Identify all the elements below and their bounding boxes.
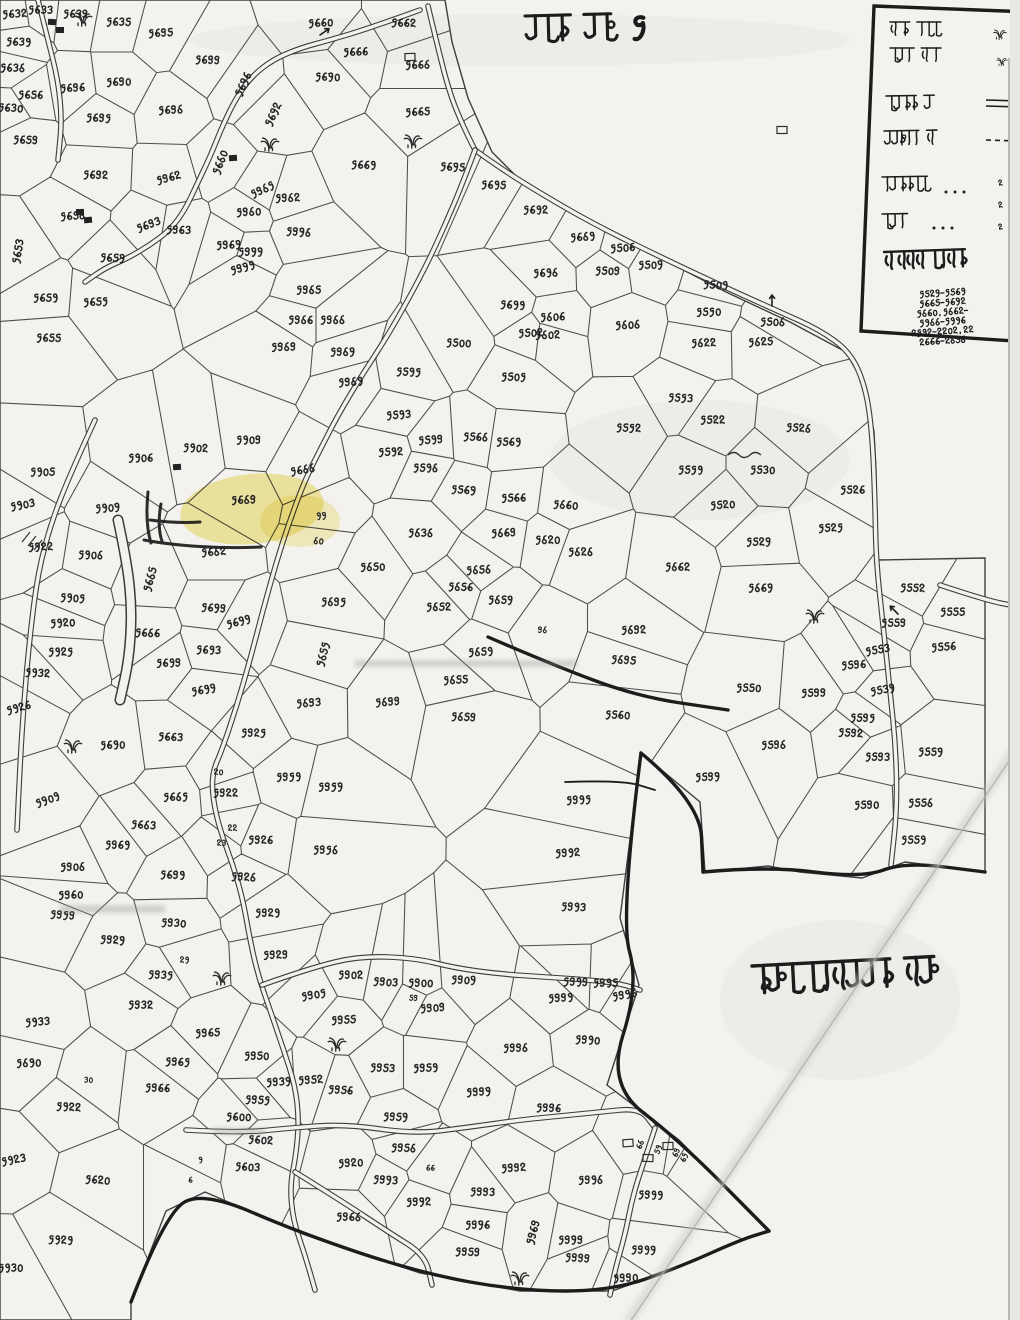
page-margin-strip [1010,0,1020,1320]
building-icon [56,27,64,33]
legend-dots [933,227,936,230]
building-icon [173,464,181,471]
building-icon [48,19,56,25]
building-icon [229,155,237,161]
scan-smudge [355,660,577,667]
scan-smudge [213,1128,265,1134]
building-icon [76,209,84,215]
legend-dots [963,191,966,194]
legend-dots [951,227,954,230]
legend-box [861,6,1020,345]
scan-smudge [60,905,165,913]
legend-dots [942,227,945,230]
legend-dots [954,191,957,194]
building-icon [84,217,92,224]
scanned-map-page: সিট নং ১ বংশভাঙ্গা নং নল কূপ পান বর পাকা… [0,0,1020,1320]
cadastral-map-canvas [0,0,1020,1320]
legend-dots [945,191,948,194]
